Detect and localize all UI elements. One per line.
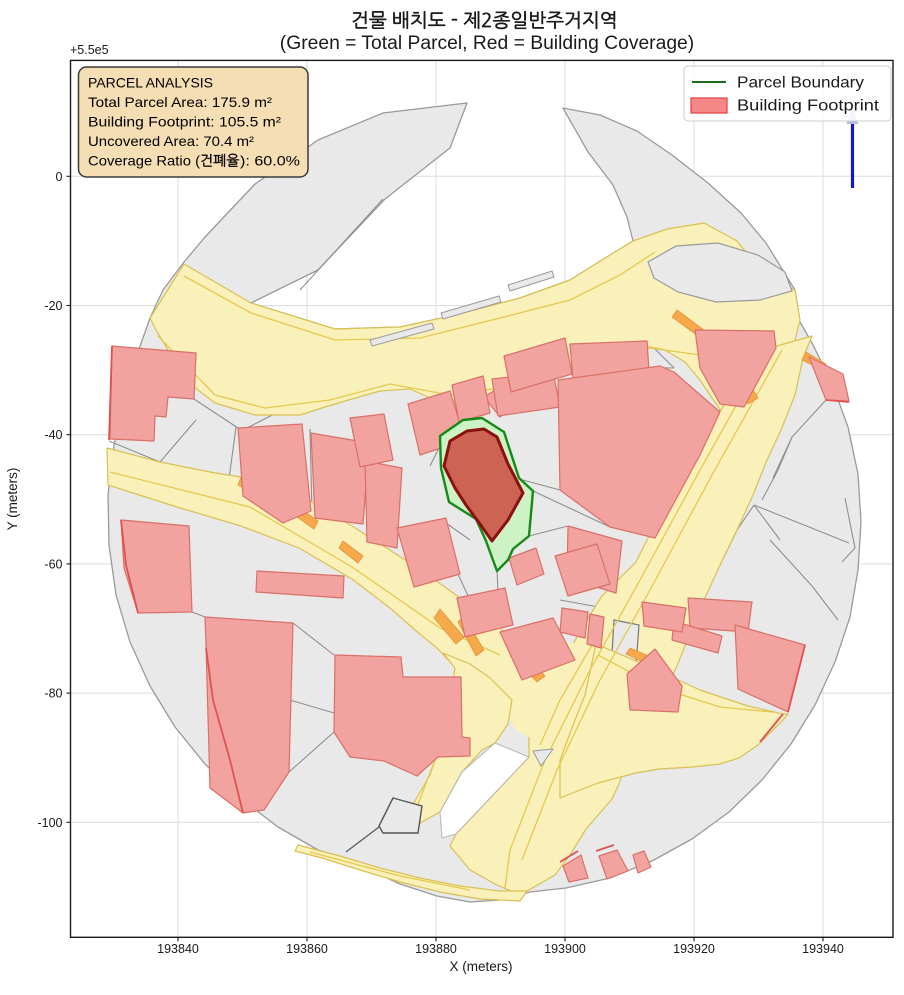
svg-text:Building Footprint: 105.5 m²: Building Footprint: 105.5 m² xyxy=(88,114,281,130)
svg-text:193920: 193920 xyxy=(673,942,715,956)
svg-text:-60: -60 xyxy=(44,557,62,571)
svg-text:193880: 193880 xyxy=(415,942,457,956)
svg-text:193940: 193940 xyxy=(802,942,844,956)
svg-text:193840: 193840 xyxy=(157,942,199,956)
svg-text:Building Footprint: Building Footprint xyxy=(737,98,880,115)
svg-text:-20: -20 xyxy=(44,299,62,313)
svg-text:Total Parcel Area: 175.9 m²: Total Parcel Area: 175.9 m² xyxy=(88,94,272,110)
svg-text:193860: 193860 xyxy=(286,942,328,956)
svg-text:-80: -80 xyxy=(44,687,62,701)
svg-text:Uncovered Area: 70.4 m²: Uncovered Area: 70.4 m² xyxy=(88,133,254,149)
svg-text:193900: 193900 xyxy=(544,942,586,956)
svg-text:X (meters): X (meters) xyxy=(449,959,512,974)
svg-text:Y (meters): Y (meters) xyxy=(5,468,20,531)
svg-text:0: 0 xyxy=(56,170,63,184)
svg-text:(Green = Total Parcel, Red = B: (Green = Total Parcel, Red = Building Co… xyxy=(280,33,694,54)
svg-text:+5.5e5: +5.5e5 xyxy=(70,43,109,57)
svg-text:): 60.0%: ): 60.0% xyxy=(240,153,300,169)
svg-text:Parcel Boundary: Parcel Boundary xyxy=(737,75,864,92)
svg-text:Coverage Ratio (: Coverage Ratio ( xyxy=(88,153,200,169)
svg-text:-40: -40 xyxy=(44,428,62,442)
svg-text:-100: -100 xyxy=(37,816,62,830)
svg-text:PARCEL ANALYSIS: PARCEL ANALYSIS xyxy=(88,74,213,90)
